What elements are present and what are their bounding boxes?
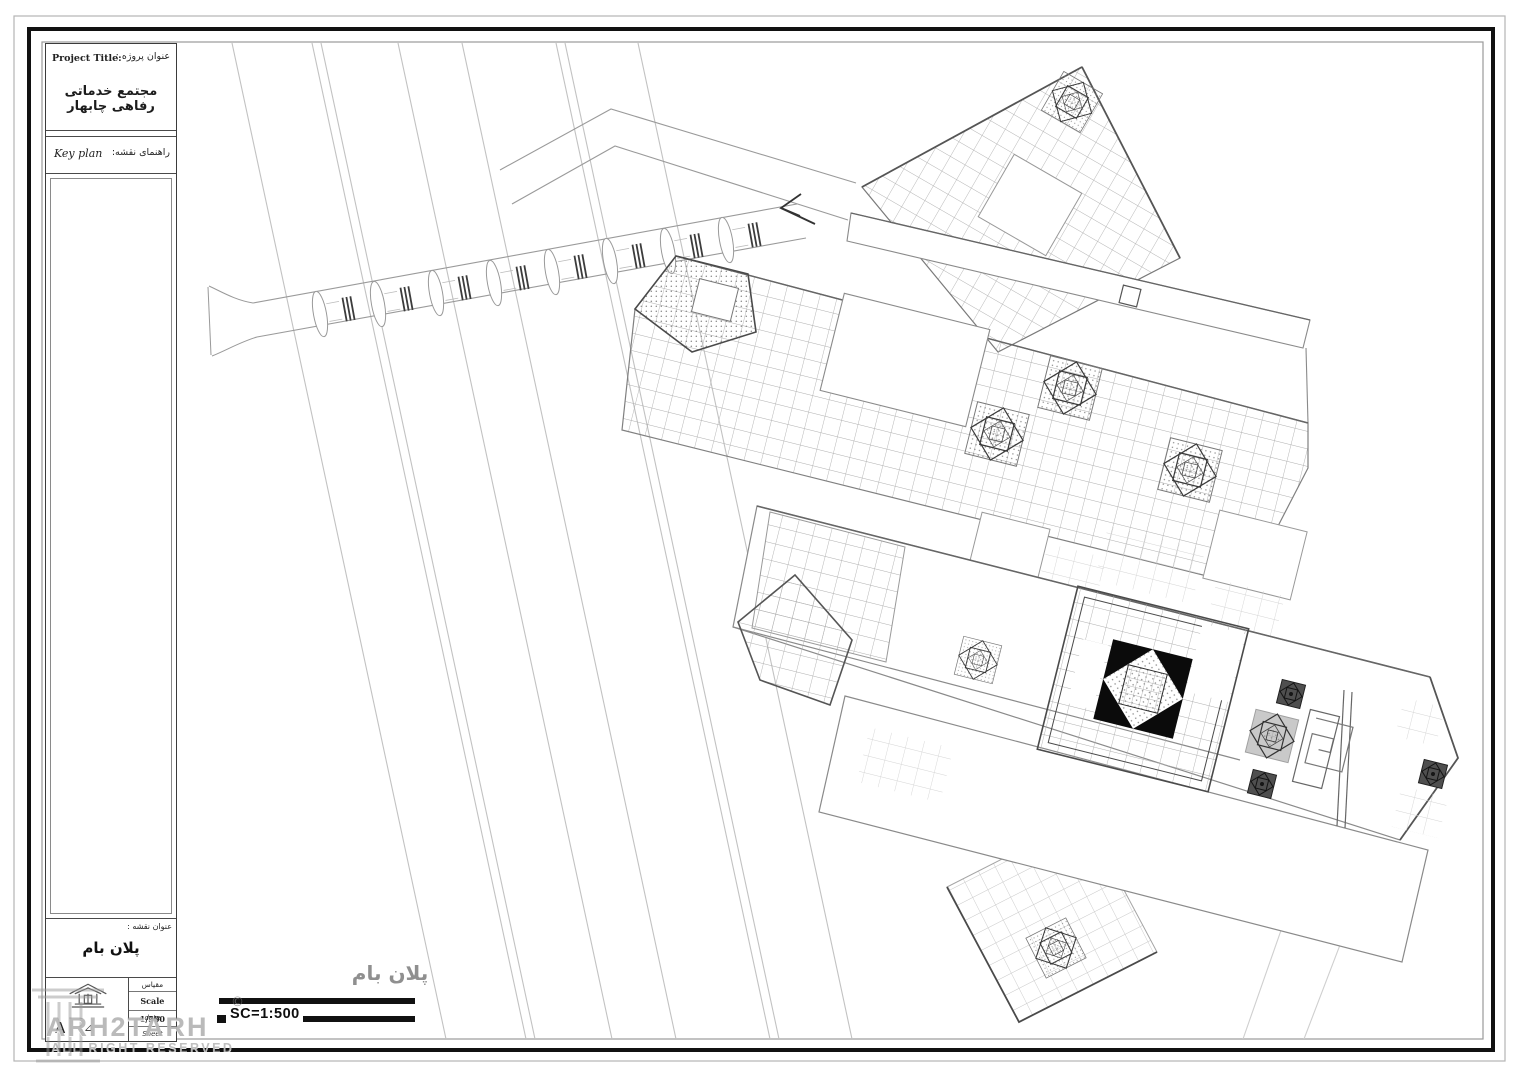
drawing-sheet: Project Title: عنوان پروژه : مجتمع خدمات… xyxy=(0,0,1529,1080)
project-name: مجتمع خدماتی رفاهی چابهار xyxy=(46,84,176,114)
key-plan-area xyxy=(46,174,176,918)
key-plan-box xyxy=(50,178,172,914)
sheet-label: Sheet xyxy=(129,1027,176,1041)
scale-bar-text: SC=1:500 xyxy=(230,1006,310,1022)
project-title-label-en: Project Title: xyxy=(52,53,122,64)
sheet-title-label: عنوان نقشه : xyxy=(127,922,172,931)
pavilion-logo-icon xyxy=(66,980,110,1012)
key-plan-row: Key plan راهنمای نقشه: xyxy=(46,137,176,174)
project-title-label-fa: عنوان پروژه : xyxy=(116,51,170,62)
date-label: date xyxy=(129,1011,176,1027)
project-title-row: Project Title: عنوان پروژه : مجتمع خدمات… xyxy=(46,44,176,131)
sheet-title-row: عنوان نقشه : پلان بام xyxy=(46,918,176,977)
key-plan-label-en: Key plan xyxy=(54,147,102,160)
title-block-footer: A ⊿ مقیاس Scale 1/500 date Sheet xyxy=(46,977,176,1041)
scale-value: Scale 1/500 xyxy=(129,992,176,1011)
plan-caption: پلان بام xyxy=(340,961,440,985)
direction-arrow-icon xyxy=(781,194,815,224)
scale-cell: مقیاس Scale 1/500 date Sheet xyxy=(128,978,176,1041)
revision-letter: A xyxy=(55,1019,65,1037)
delta-marker-icon: ⊿ xyxy=(84,1021,93,1034)
roof-plan-drawing xyxy=(0,0,1529,1080)
firm-logo-cell: A ⊿ xyxy=(46,978,128,1041)
scale-label-fa: مقیاس xyxy=(129,978,176,992)
sheet-title: پلان بام xyxy=(46,939,176,957)
title-block: Project Title: عنوان پروژه : مجتمع خدمات… xyxy=(45,43,177,1042)
key-plan-label-fa: راهنمای نقشه: xyxy=(112,147,170,158)
